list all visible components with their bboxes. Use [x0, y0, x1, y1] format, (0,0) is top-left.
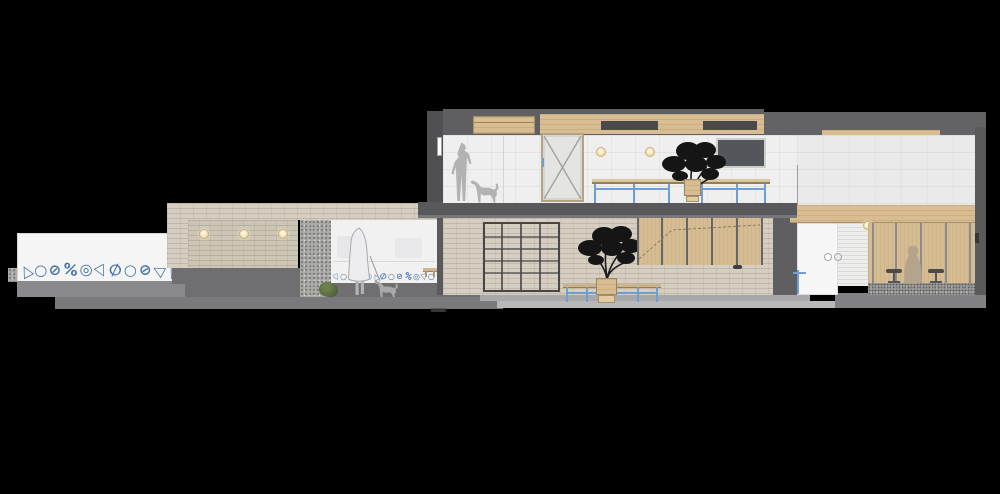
floor-step-lighter: [497, 301, 838, 308]
dog-silhouette-upper: [470, 176, 500, 203]
soffit-cabinet-line: [474, 122, 534, 123]
planter-upper-tab: [686, 196, 699, 202]
ground-base-right: [835, 293, 986, 308]
wall-sconce: [437, 137, 442, 156]
elevation-drawing: △○⊘%◎▽∅○⊘◁△% ▽○⊘%◎△∅○⊘%◎▽○: [0, 0, 1000, 494]
table-leg-2: [633, 182, 635, 203]
bench-leg-1: [566, 287, 568, 302]
planter-lower-drawer: [598, 295, 615, 303]
table-leg-5: [736, 182, 738, 203]
shrub: [319, 282, 338, 297]
slat-seam-4: [945, 223, 947, 285]
bar-stool-2-base: [930, 281, 942, 283]
wood-stool-leg: [425, 271, 427, 277]
slat-seam-5: [969, 223, 971, 285]
brick-wall-light-3: [278, 229, 288, 239]
garden-wall-base: [17, 281, 185, 297]
bar-stool-1-base: [888, 281, 900, 283]
soffit-cabinet-left: [473, 116, 535, 134]
x-braced-door: [541, 133, 584, 202]
wall-sensor: [733, 265, 742, 269]
door-pull-1: [824, 253, 832, 261]
garden-wall-frieze: △○⊘%◎▽∅○⊘◁△%: [20, 259, 182, 281]
bench-leg-3: [637, 287, 639, 302]
brick-shadow-base: [172, 268, 300, 284]
right-wall-knob: [975, 233, 979, 243]
dark-pier: [773, 215, 797, 295]
brick-wall-light-2: [239, 229, 249, 239]
soffit-niche-2: [703, 121, 757, 130]
floor-step-light: [480, 294, 810, 301]
left-gate-post: [8, 268, 17, 282]
bench-leg-4: [656, 287, 658, 302]
upper-wall-right-edge: [797, 165, 798, 205]
slat-seam-1: [872, 223, 874, 285]
upper-left-pillar: [427, 111, 443, 202]
brick-recess-panel: [188, 220, 298, 268]
upper-wall-seam: [503, 135, 504, 203]
slat-seam-2: [895, 223, 897, 285]
shoji-panel: [838, 223, 868, 286]
wood-stool-leg2: [433, 271, 435, 277]
seated-figure: [902, 245, 924, 288]
door-pull-2: [834, 253, 842, 261]
brick-band-top: [167, 203, 443, 220]
scale-smudge: [431, 308, 446, 312]
door-handle: [542, 158, 544, 167]
door-floor-marker-h: [793, 272, 806, 274]
right-end-wall: [975, 127, 986, 295]
stair-projection-line: [637, 218, 763, 265]
grid-shelving: [483, 222, 560, 292]
white-sliding-door: [797, 223, 838, 295]
soffit-niche-1: [601, 121, 658, 130]
tree-lower: [568, 218, 648, 282]
dog-silhouette-lower: [374, 279, 400, 297]
planter-upper: [684, 179, 701, 196]
table-leg-1: [594, 182, 596, 203]
upper-light-1: [596, 147, 606, 157]
table-leg-6: [764, 182, 766, 203]
bench-leg-2: [586, 287, 588, 302]
upper-floor-slab: [418, 202, 797, 218]
wood-header-band: [790, 205, 975, 223]
planter-lower: [596, 278, 617, 295]
room-fixture-right: [395, 238, 422, 258]
brick-wall-light-1: [199, 229, 209, 239]
upper-wall-right: [797, 135, 977, 205]
